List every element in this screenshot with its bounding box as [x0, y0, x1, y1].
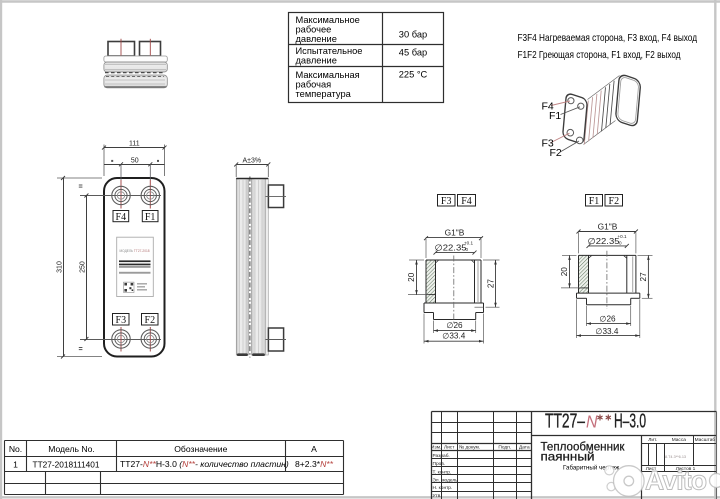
- svg-text:F1: F1: [145, 212, 156, 223]
- svg-text:F1: F1: [589, 196, 600, 207]
- svg-text:27: 27: [486, 279, 495, 289]
- svg-text:F2: F2: [145, 315, 156, 326]
- svg-text:N: N: [586, 411, 598, 431]
- svg-text:А: А: [311, 444, 317, 454]
- svg-text:∅26: ∅26: [599, 315, 616, 324]
- svg-text:Т. контр.: Т. контр.: [433, 469, 452, 475]
- svg-text:Дата: Дата: [519, 445, 530, 451]
- svg-text:F3: F3: [441, 196, 452, 207]
- svg-text:30 бар: 30 бар: [399, 29, 427, 39]
- svg-text:111: 111: [129, 140, 140, 147]
- svg-text:50: 50: [131, 158, 139, 165]
- svg-text:27: 27: [639, 272, 648, 282]
- svg-text:F1F2 Греющая сторона, F1 вход,: F1F2 Греющая сторона, F1 вход, F2 выход: [518, 49, 681, 61]
- svg-text:-0: -0: [464, 247, 469, 252]
- svg-text:20: 20: [560, 267, 569, 277]
- svg-text:8.Т4.3**6.13: 8.Т4.3**6.13: [665, 455, 686, 459]
- svg-text:давление: давление: [296, 56, 337, 66]
- svg-text:F2: F2: [609, 196, 620, 207]
- svg-text:+0.1: +0.1: [464, 241, 474, 246]
- svg-text:Модель No.: Модель No.: [48, 444, 95, 454]
- svg-text:F2: F2: [550, 147, 562, 159]
- svg-text:Утв.: Утв.: [433, 493, 442, 499]
- svg-text:225 °C: 225 °C: [399, 70, 428, 80]
- svg-text:1: 1: [13, 460, 18, 470]
- svg-text:F3: F3: [116, 315, 127, 326]
- svg-text:∅22.35: ∅22.35: [588, 236, 620, 246]
- svg-text:Разраб.: Разраб.: [433, 453, 450, 459]
- svg-text:ТТ27–: ТТ27–: [545, 411, 586, 433]
- svg-text:МОДЕЛЬ ТТ27-2018: МОДЕЛЬ ТТ27-2018: [120, 249, 150, 253]
- svg-text:Обозначение: Обозначение: [174, 444, 227, 454]
- svg-text:давление: давление: [296, 34, 337, 44]
- svg-text:8+2.3*N**: 8+2.3*N**: [295, 459, 334, 469]
- svg-text:310: 310: [57, 261, 64, 273]
- svg-text:F1: F1: [549, 110, 561, 122]
- svg-text:Н–3.0: Н–3.0: [614, 411, 646, 433]
- svg-text:G1"B: G1"B: [598, 221, 618, 231]
- svg-text:Пров.: Пров.: [433, 461, 446, 467]
- svg-text:∅33.4: ∅33.4: [595, 327, 619, 336]
- svg-text:ТТ27-2018111401: ТТ27-2018111401: [33, 460, 100, 470]
- svg-text:Лист: Лист: [444, 445, 455, 451]
- svg-text:+0.1: +0.1: [618, 234, 628, 239]
- svg-text:Н. контр.: Н. контр.: [433, 485, 453, 491]
- svg-text:Максимальное: Максимальное: [296, 15, 360, 25]
- svg-text:Avito: Avito: [645, 466, 707, 496]
- svg-text:Масштаб: Масштаб: [695, 437, 716, 443]
- svg-text:∅22.35: ∅22.35: [435, 242, 467, 252]
- svg-text:ТТ27-N**Н-3.0 (N**- количеств: ТТ27-N**Н-3.0 (N**- количество пластин): [120, 459, 289, 469]
- svg-text:Лит.: Лит.: [648, 437, 657, 443]
- svg-text:температура: температура: [296, 89, 352, 99]
- svg-text:F3F4 Нагреваемая сторона, F3 в: F3F4 Нагреваемая сторона, F3 вход, F4 вы…: [518, 32, 698, 44]
- svg-text:∅33.4: ∅33.4: [442, 332, 466, 341]
- svg-text:-0: -0: [618, 241, 623, 246]
- svg-text:F4: F4: [116, 212, 127, 223]
- svg-text:Масса: Масса: [672, 437, 687, 443]
- svg-text:№ докум.: № докум.: [459, 445, 480, 451]
- svg-text:A±3%: A±3%: [242, 157, 261, 164]
- svg-text:Эл. модель: Эл. модель: [433, 478, 459, 484]
- svg-text:No.: No.: [9, 444, 22, 454]
- svg-text:F4: F4: [461, 196, 472, 207]
- svg-text:∅26: ∅26: [446, 321, 463, 330]
- svg-text:паянный: паянный: [541, 450, 595, 464]
- svg-text:Изм.: Изм.: [431, 445, 441, 451]
- svg-text:20: 20: [407, 272, 416, 282]
- svg-text:Подп.: Подп.: [498, 445, 511, 451]
- svg-text:G1"B: G1"B: [445, 228, 465, 238]
- svg-text:250: 250: [80, 261, 87, 273]
- svg-text:45 бар: 45 бар: [399, 47, 427, 57]
